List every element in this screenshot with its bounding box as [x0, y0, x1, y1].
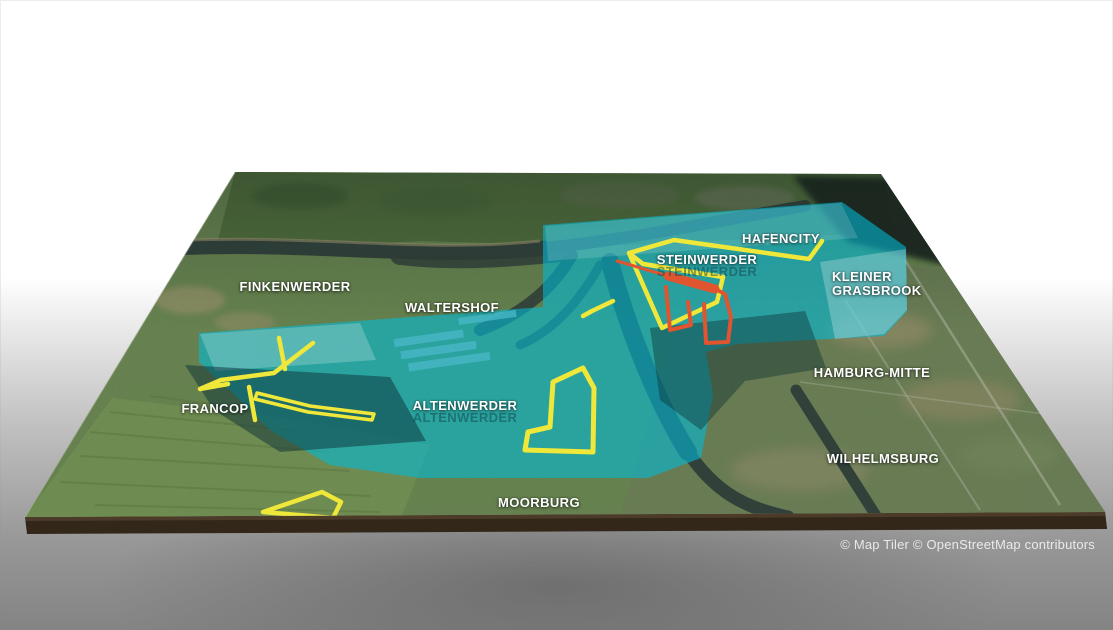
terrain-top-face — [0, 150, 1113, 550]
map-page: FINKENWERDERWALTERSHOFSTEINWERDERSTEINWE… — [0, 0, 1113, 630]
map-attribution-link[interactable]: © Map Tiler © OpenStreetMap contributors — [840, 537, 1095, 552]
map-3d-scene[interactable] — [0, 0, 1113, 630]
